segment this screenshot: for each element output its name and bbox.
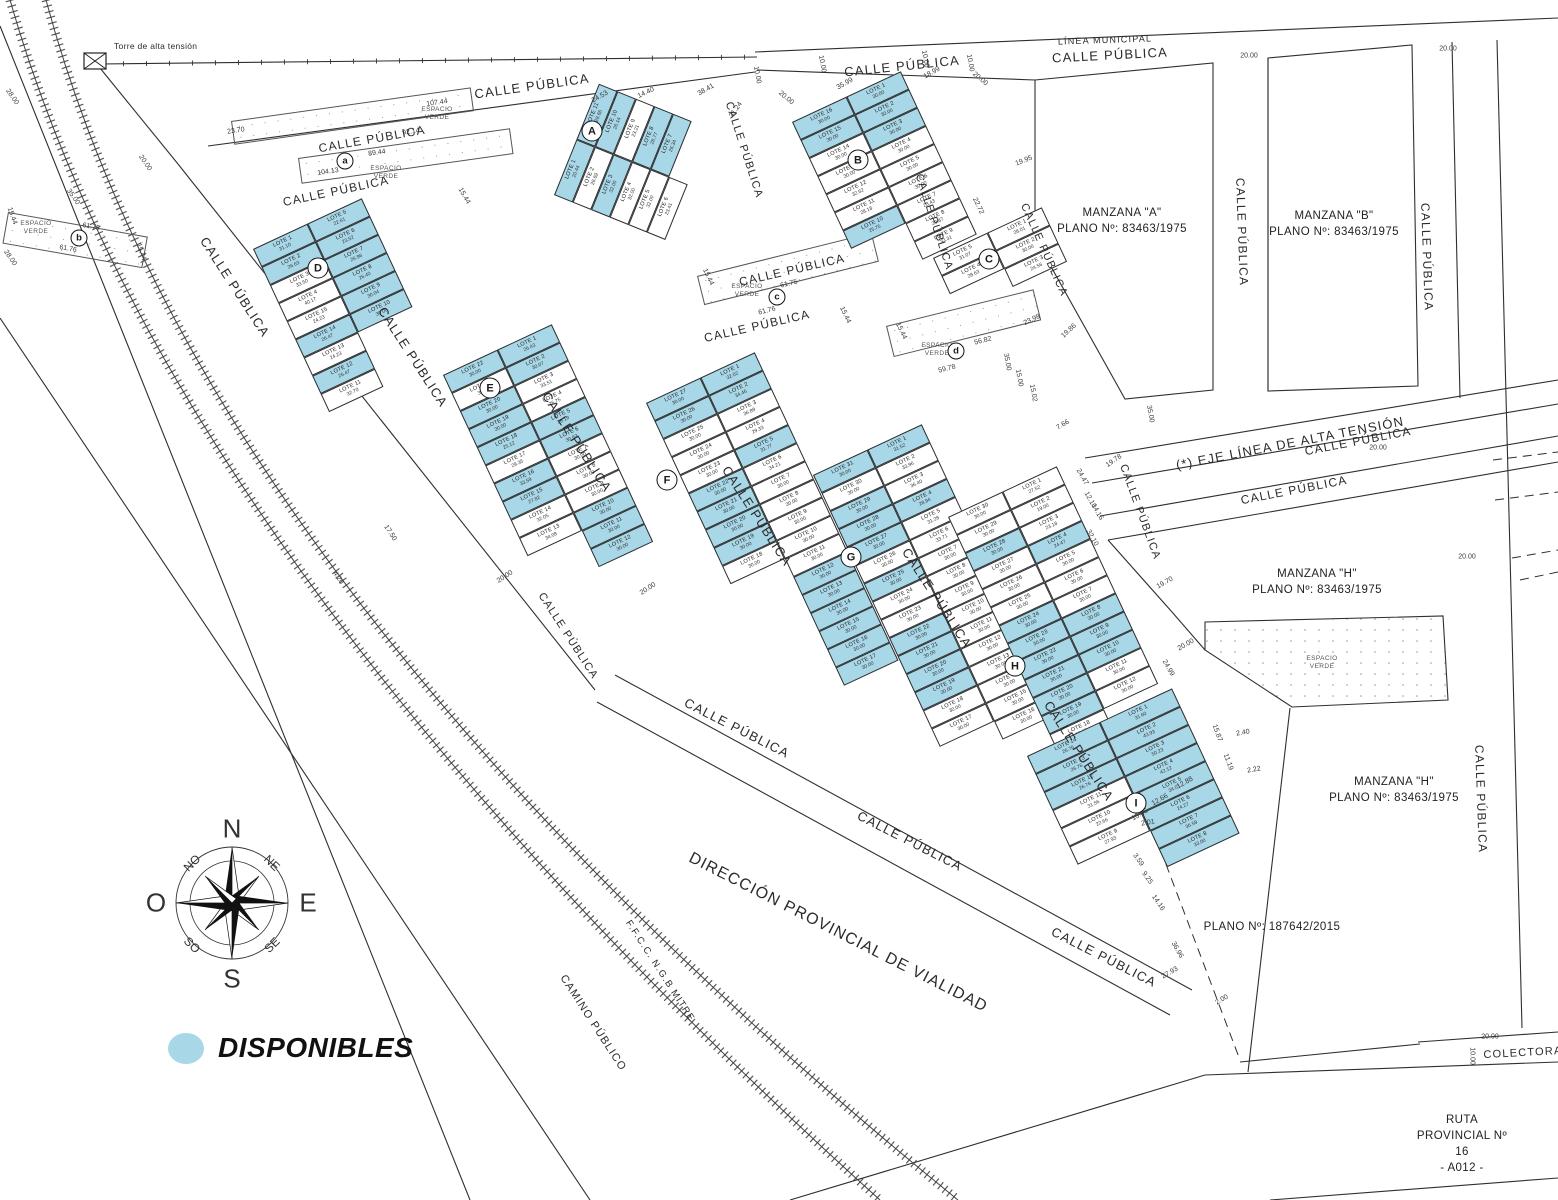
lot-dimension: 20.44 [572, 165, 582, 179]
dimension-label: 20.00 [1481, 1034, 1499, 1041]
block-marker-F: F [657, 470, 678, 491]
area-label: RUTA PROVINCIAL Nº 16- A012 - [1414, 1112, 1510, 1176]
lot-dimension: 26.14 [613, 117, 623, 131]
area-label: MANZANA "H"PLANO Nº: 83463/1975 [1252, 566, 1382, 598]
compass-label-n: N [223, 814, 242, 845]
block-marker-E: E [480, 378, 501, 399]
block-marker-a: a [337, 153, 354, 170]
compass-label-s: S [223, 964, 240, 995]
lot-dimension: 28.77 [651, 132, 661, 146]
dimension-label: 20.00 [1458, 554, 1476, 561]
legend: DISPONIBLES [168, 1032, 413, 1064]
block-marker-c: c [769, 289, 786, 306]
dimension-label: 20.00 [1369, 445, 1387, 452]
lot-dimension: 32.00 [647, 195, 657, 209]
legend-label: DISPONIBLES [218, 1032, 413, 1064]
lot-dimension: 23.21 [632, 125, 642, 139]
block-marker-B: B [848, 150, 869, 171]
area-label: MANZANA "H"PLANO Nº: 83463/1975 [1329, 774, 1459, 806]
dimension-label: 20.00 [1240, 53, 1258, 60]
block-marker-b: b [71, 230, 88, 247]
block-marker-C: C [979, 249, 1000, 270]
lot-dimension: 28.69 [591, 173, 601, 187]
subdivision-plat-map: Torre de alta tensiónESPACIOVERDEESPACIO… [0, 0, 1558, 1200]
green-space-label: ESPACIOVERDE [20, 220, 51, 236]
block-marker-G: G [841, 547, 862, 568]
compass-label-e: E [299, 888, 316, 919]
block-marker-d: d [948, 343, 965, 360]
area-label: MANZANA "B"PLANO Nº: 83463/1975 [1269, 208, 1399, 240]
block-marker-D: D [308, 258, 329, 279]
dimension-label: 20.00 [1439, 46, 1457, 53]
block-marker-I: I [1126, 793, 1147, 814]
legend-available-swatch [168, 1033, 204, 1064]
green-space-label: ESPACIOVERDE [1306, 655, 1337, 671]
green-space-label: ESPACIOVERDE [421, 106, 452, 122]
compass-label-o: O [146, 888, 166, 919]
lot-dimension: 32.00 [628, 188, 638, 202]
dimension-label: 10.00 [1469, 1047, 1476, 1065]
block-marker-A: A [582, 121, 603, 142]
block-marker-H: H [1005, 656, 1026, 677]
lot-dimension: 32.00 [610, 180, 620, 194]
tower-label: Torre de alta tensión [114, 41, 197, 51]
area-label: PLANO Nº: 187642/2015 [1204, 919, 1341, 935]
area-label: MANZANA "A"PLANO Nº: 83463/1975 [1057, 205, 1187, 237]
lot-dimension: 26.34 [669, 140, 679, 154]
lot-dimension: 23.41 [665, 203, 675, 217]
